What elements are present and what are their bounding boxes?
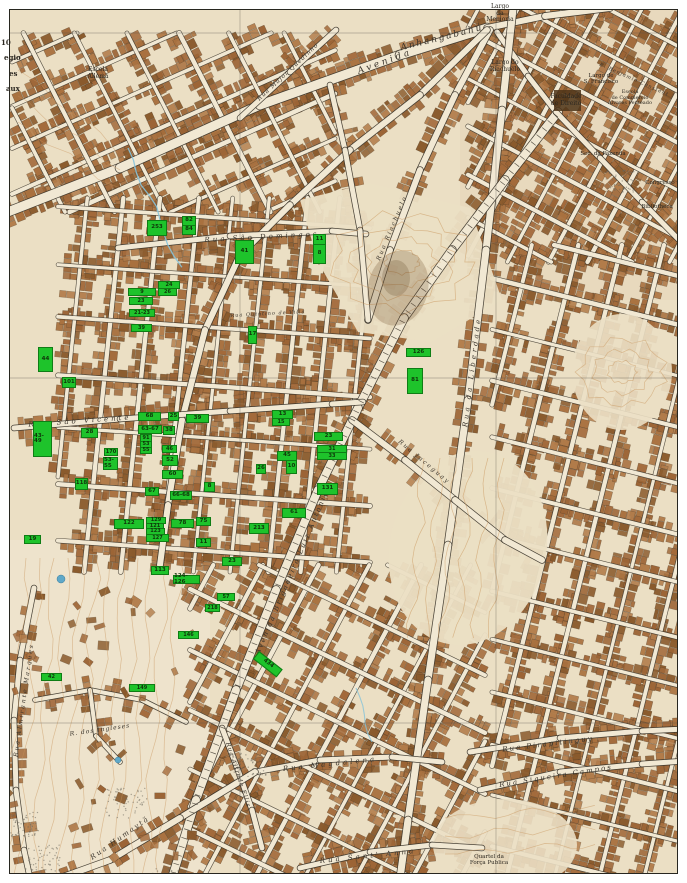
lot-marker-253[interactable]: 253 — [147, 220, 167, 236]
lot-marker-118[interactable]: 118 — [75, 478, 88, 490]
lot-marker-39[interactable]: 39 — [131, 324, 152, 332]
lot-marker-23[interactable]: 23 — [222, 557, 242, 566]
lot-marker-21-23[interactable]: 21-23 — [129, 309, 155, 317]
city-map: AvenidaAnhangabahúRua Major QuedinhoRua … — [0, 0, 687, 883]
lot-marker-213[interactable]: 213 — [249, 523, 269, 534]
lot-marker-52[interactable]: 52 — [162, 455, 178, 466]
lot-marker-38[interactable]: 38 — [163, 426, 175, 435]
lot-marker-127[interactable]: 127 — [146, 534, 169, 542]
lot-marker-23[interactable]: 23 — [314, 432, 343, 441]
lot-marker-33[interactable]: 33 — [317, 452, 347, 460]
lot-marker-28[interactable]: 28 — [81, 428, 98, 438]
lot-marker-63-67[interactable]: 63-67 — [138, 425, 162, 434]
lot-marker-9[interactable]: 9 — [128, 288, 156, 296]
lot-marker-218[interactable]: 218 — [205, 604, 220, 612]
lot-marker-23[interactable]: 23 — [129, 297, 153, 305]
lot-marker-81[interactable]: 81 — [407, 368, 423, 394]
lot-marker-19[interactable]: 19 — [24, 535, 41, 544]
lot-marker-146[interactable]: 146 — [178, 631, 199, 639]
lot-marker-39[interactable]: 39 — [186, 414, 209, 423]
lot-marker-124-126[interactable]: 124-126 — [173, 575, 200, 584]
map-canvas — [0, 0, 687, 883]
lot-marker-101[interactable]: 101 — [62, 377, 76, 388]
lot-marker-55[interactable]: 55 — [140, 447, 152, 454]
lot-marker-17[interactable]: 17 — [248, 326, 257, 344]
lot-marker-149[interactable]: 149 — [129, 684, 155, 692]
lot-marker-75[interactable]: 75 — [196, 517, 211, 526]
lot-marker-8[interactable]: 8 — [313, 244, 326, 264]
lot-marker-113[interactable]: 113 — [151, 566, 169, 575]
lot-marker-66-68[interactable]: 66-68 — [170, 491, 192, 500]
lot-marker-53-55[interactable]: 53-55 — [103, 457, 118, 470]
lot-marker-84[interactable]: 84 — [182, 225, 196, 235]
lot-marker-26[interactable]: 26 — [158, 288, 177, 296]
lot-marker-67[interactable]: 67 — [145, 487, 159, 496]
lot-marker-15[interactable]: 15 — [272, 418, 290, 426]
lot-marker-44[interactable]: 44 — [38, 347, 53, 372]
lot-marker-126[interactable]: 126 — [406, 348, 431, 357]
lot-marker-61[interactable]: 61 — [282, 508, 306, 518]
lot-marker-78[interactable]: 78 — [171, 519, 194, 528]
lot-marker-26[interactable]: 26 — [256, 464, 266, 474]
lot-marker-43-49[interactable]: 43-49 — [33, 421, 52, 457]
lot-marker-170[interactable]: 170 — [104, 448, 118, 456]
lot-marker-8[interactable]: 8 — [204, 482, 215, 492]
lot-marker-60[interactable]: 60 — [162, 470, 183, 479]
lot-marker-131[interactable]: 131 — [317, 483, 338, 495]
lot-marker-46[interactable]: 46 — [162, 445, 177, 453]
lot-marker-57[interactable]: 57 — [217, 593, 235, 601]
lot-marker-122[interactable]: 122 — [114, 519, 144, 529]
lot-marker-68[interactable]: 68 — [138, 412, 161, 421]
lot-marker-10[interactable]: 10 — [286, 460, 297, 474]
lot-marker-42[interactable]: 42 — [41, 673, 62, 681]
lot-marker-25[interactable]: 25 — [168, 412, 179, 421]
lot-marker-41[interactable]: 41 — [235, 240, 254, 264]
lot-marker-11[interactable]: 11 — [196, 538, 211, 547]
